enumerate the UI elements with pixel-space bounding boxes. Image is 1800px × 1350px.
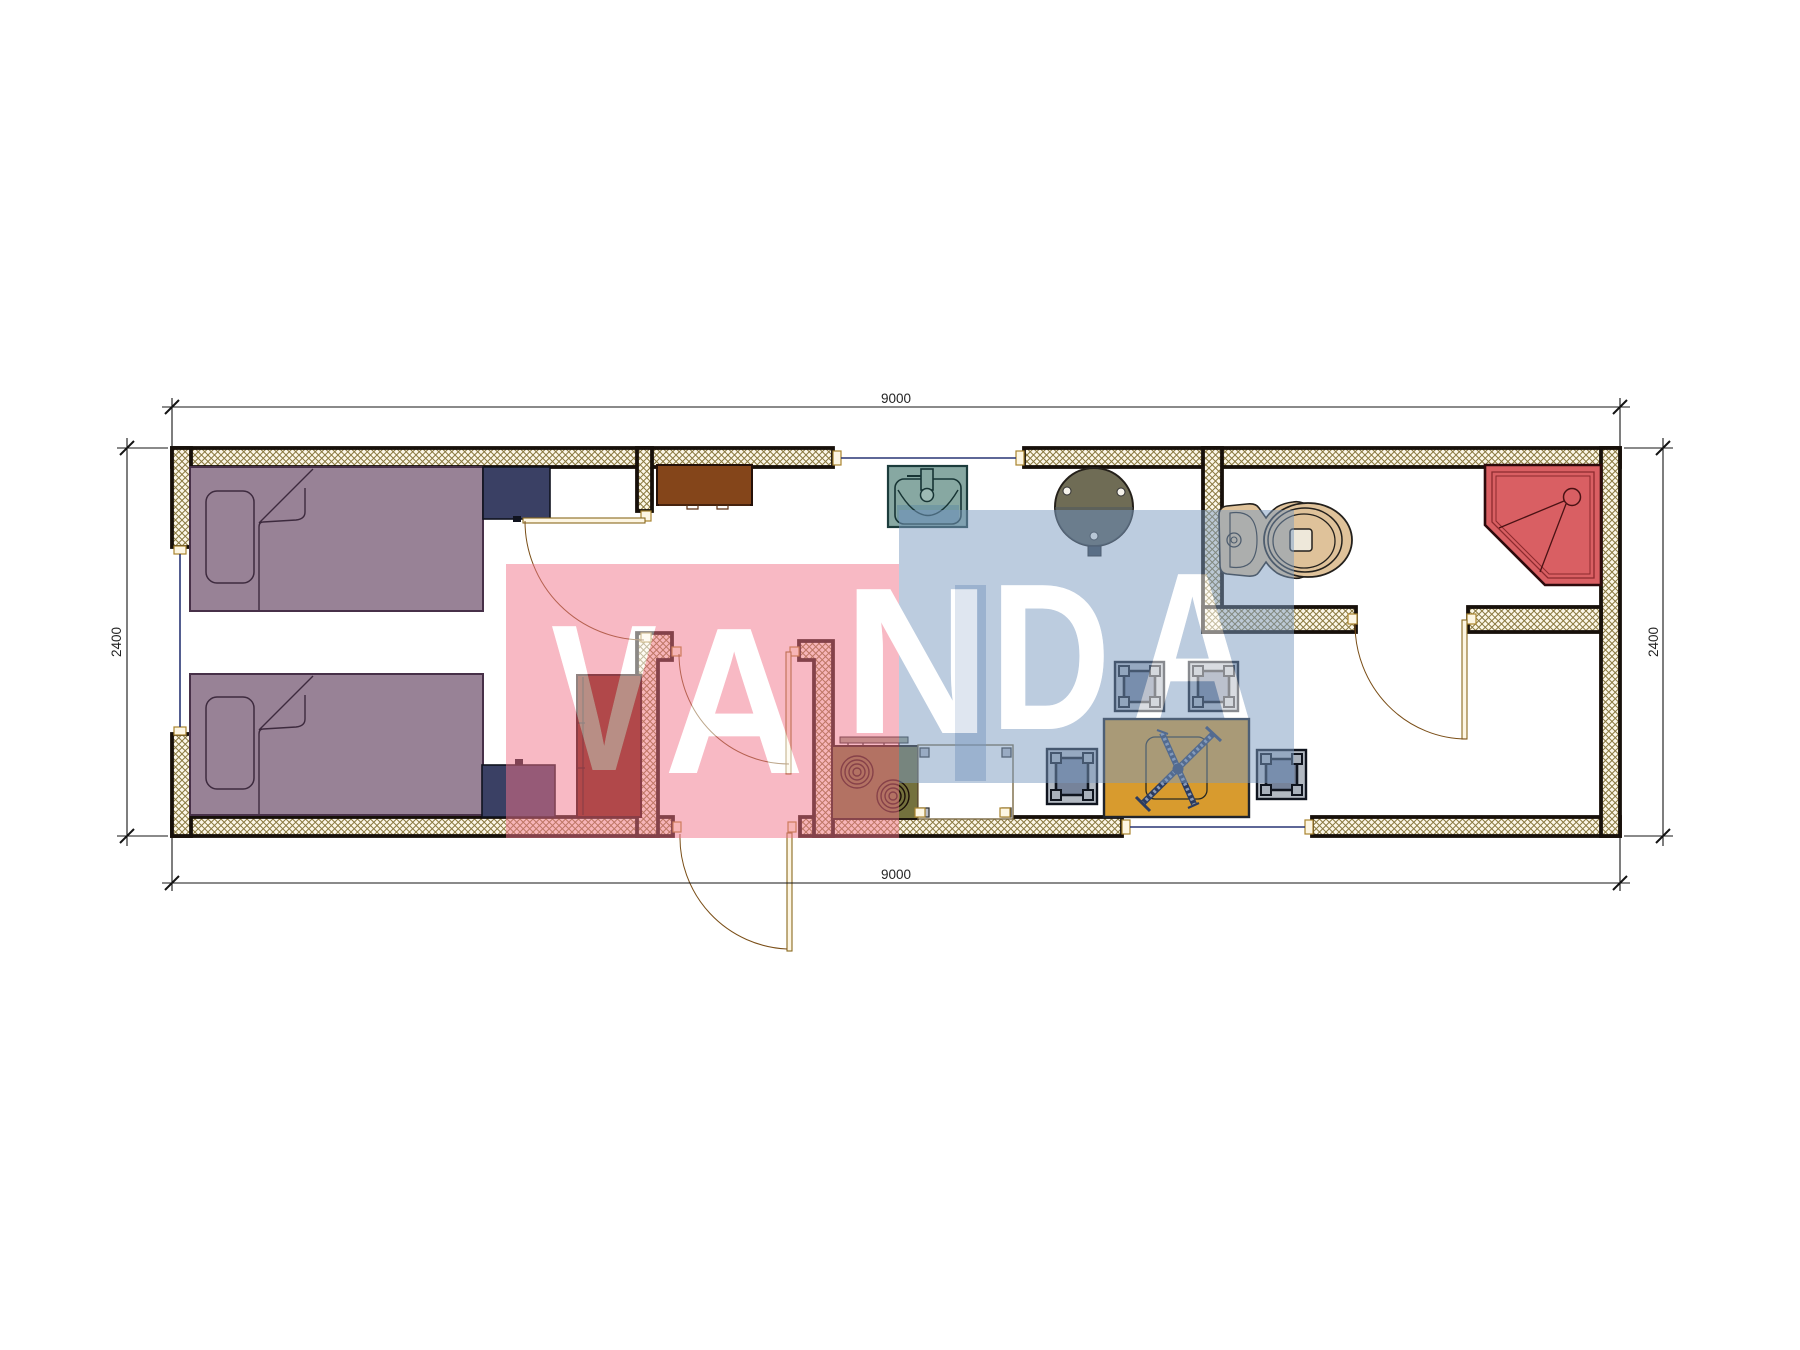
svg-text:2400: 2400 xyxy=(109,627,124,657)
svg-text:9000: 9000 xyxy=(881,391,911,406)
svg-text:2400: 2400 xyxy=(1646,627,1661,657)
svg-text:9000: 9000 xyxy=(881,867,911,882)
